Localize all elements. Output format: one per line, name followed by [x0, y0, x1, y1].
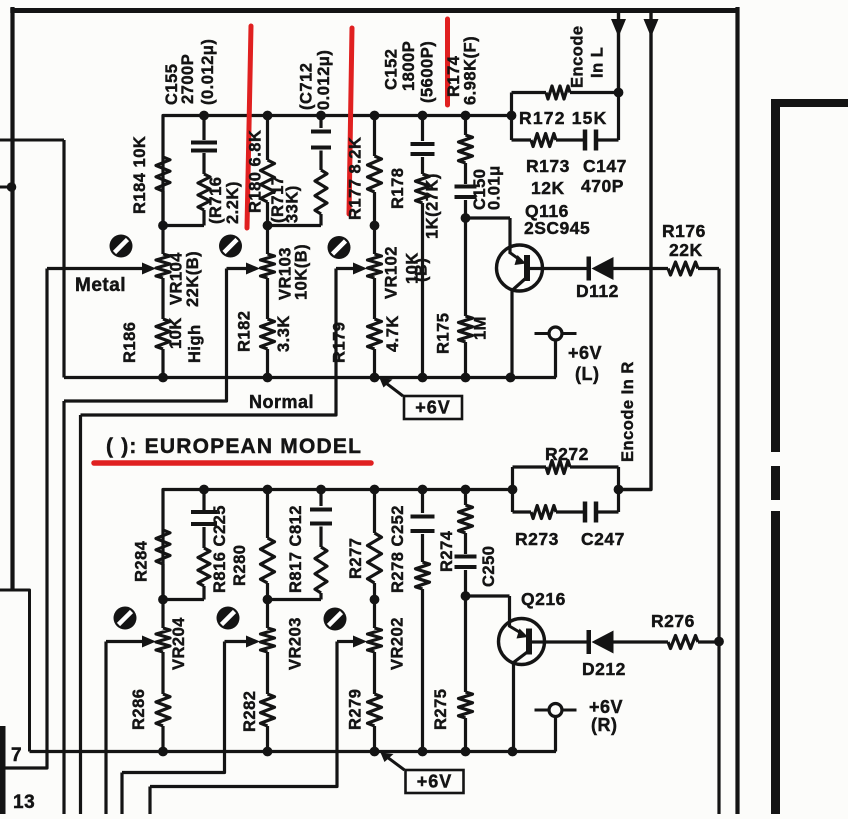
svg-text:Encode: Encode	[569, 25, 587, 88]
svg-text:22K: 22K	[669, 240, 703, 260]
svg-text:VR202: VR202	[389, 617, 407, 670]
svg-text:In L: In L	[589, 47, 607, 78]
svg-text:+6V: +6V	[415, 398, 451, 418]
svg-text:C247: C247	[581, 529, 625, 549]
svg-text:Normal: Normal	[249, 392, 314, 412]
svg-text:6.98K(F): 6.98K(F)	[462, 36, 480, 105]
svg-text:High: High	[186, 324, 204, 363]
svg-text:10K(B): 10K(B)	[293, 244, 311, 300]
svg-text:12K: 12K	[531, 178, 565, 198]
svg-text:VR102: VR102	[383, 246, 401, 299]
svg-text:C152: C152	[383, 49, 401, 90]
svg-text:R817 C812: R817 C812	[287, 505, 305, 593]
svg-text:10K: 10K	[167, 317, 185, 349]
svg-text:(5600P): (5600P)	[419, 41, 437, 103]
svg-text:+6V: +6V	[417, 772, 453, 792]
svg-text:0.01μ: 0.01μ	[486, 165, 504, 210]
svg-text:R173: R173	[526, 156, 570, 176]
svg-text:R178: R178	[389, 168, 407, 209]
svg-text:D212: D212	[582, 659, 626, 679]
svg-text:C250: C250	[480, 546, 498, 587]
svg-text:(R716: (R716	[207, 177, 225, 224]
svg-text:4.7K: 4.7K	[384, 315, 402, 352]
svg-text:Encode In R: Encode In R	[619, 361, 637, 462]
svg-text:(0.012μ): (0.012μ)	[199, 39, 217, 105]
svg-text:VR104: VR104	[168, 252, 186, 305]
svg-text:Metal: Metal	[75, 275, 126, 296]
svg-text:R180 6.8K: R180 6.8K	[247, 130, 265, 213]
svg-text:R280: R280	[231, 545, 249, 586]
svg-text:VR204: VR204	[170, 617, 188, 670]
svg-text:13: 13	[13, 792, 35, 813]
svg-text:R279: R279	[347, 689, 365, 730]
svg-text:(R): (R)	[591, 715, 618, 735]
svg-text:33K): 33K)	[284, 185, 302, 223]
svg-text:R179: R179	[331, 322, 349, 363]
svg-text:7: 7	[11, 745, 22, 766]
svg-text:3.3K: 3.3K	[275, 315, 293, 352]
svg-text:R184 10K: R184 10K	[131, 136, 149, 214]
svg-text:R284: R284	[133, 540, 151, 582]
svg-text:D112: D112	[576, 281, 619, 301]
svg-text:+6V: +6V	[568, 343, 602, 363]
svg-text:R274: R274	[438, 530, 456, 572]
svg-text:R272: R272	[545, 444, 589, 464]
svg-text:R186: R186	[121, 322, 139, 363]
svg-text:R176: R176	[662, 221, 706, 241]
svg-text:2.2K): 2.2K)	[224, 181, 242, 224]
svg-text:1800P: 1800P	[400, 41, 418, 91]
svg-text:(L): (L)	[575, 364, 599, 384]
svg-text:R276: R276	[651, 611, 695, 631]
svg-text:R275: R275	[432, 689, 450, 730]
svg-text:+6V: +6V	[589, 697, 623, 717]
svg-text:0.012μ): 0.012μ)	[315, 50, 333, 110]
svg-text:R175: R175	[435, 313, 453, 354]
svg-text:R177 8.2K: R177 8.2K	[347, 137, 365, 220]
svg-text:R172 15K: R172 15K	[519, 108, 607, 128]
svg-text:(B): (B)	[413, 258, 431, 282]
svg-text:R273: R273	[515, 529, 559, 549]
svg-text:R816 C225: R816 C225	[211, 505, 229, 593]
svg-text:VR203: VR203	[287, 617, 305, 670]
svg-text:( ): EUROPEAN MODEL: ( ): EUROPEAN MODEL	[106, 435, 362, 458]
svg-text:(C712: (C712	[298, 63, 316, 110]
svg-text:R282: R282	[241, 691, 259, 732]
svg-text:Q216: Q216	[521, 589, 566, 609]
svg-text:2700P: 2700P	[179, 54, 197, 104]
svg-text:1M: 1M	[472, 316, 490, 340]
svg-text:C147: C147	[583, 156, 627, 176]
svg-text:470P: 470P	[581, 176, 624, 196]
svg-text:R182: R182	[236, 311, 254, 352]
svg-text:R278 C252: R278 C252	[389, 505, 407, 593]
svg-text:R277: R277	[347, 538, 365, 579]
svg-text:R174: R174	[445, 55, 463, 97]
svg-text:1K(27K): 1K(27K)	[424, 173, 442, 239]
svg-text:22K(B): 22K(B)	[184, 251, 202, 307]
svg-text:2SC945: 2SC945	[524, 218, 590, 238]
svg-text:R286: R286	[130, 689, 148, 730]
